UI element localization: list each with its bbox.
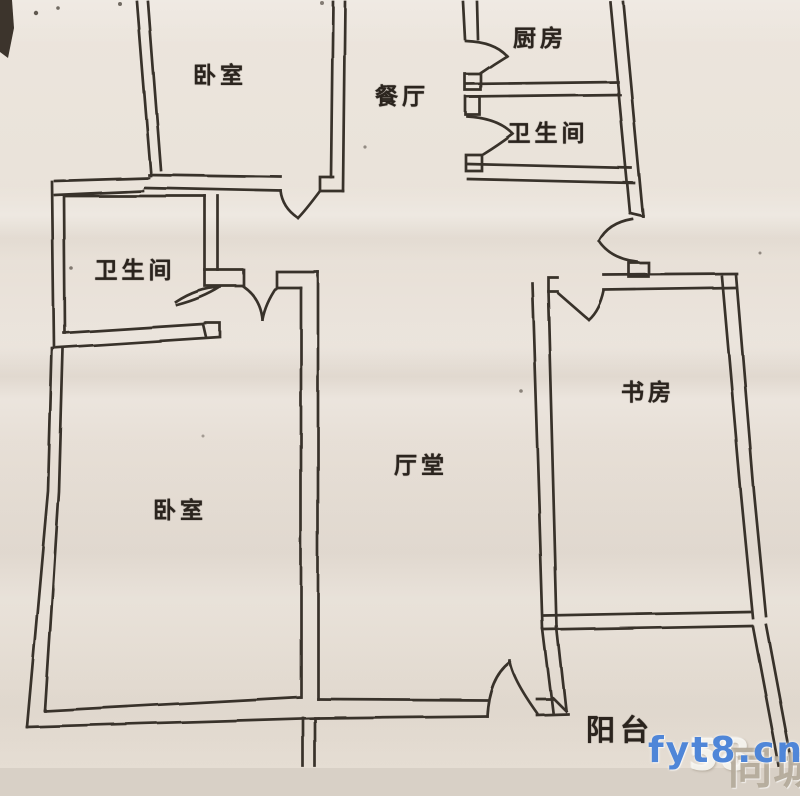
wall-hall-bottom — [318, 698, 568, 718]
room-label-bedroom-bottom: 卧室 — [153, 491, 207, 525]
wall-bedroom-top-left — [137, 2, 345, 191]
room-label-bathroom-left: 卫生间 — [95, 251, 176, 285]
wall-study — [532, 274, 766, 712]
room-label-bathroom-top: 卫生间 — [508, 114, 589, 148]
wall-hall-divider — [277, 272, 318, 699]
door-arc-study — [558, 291, 604, 320]
room-label-hall: 厅堂 — [394, 446, 448, 480]
room-label-dining: 餐厅 — [375, 77, 429, 111]
door-arc-bedroom-top — [281, 191, 320, 218]
wall-balcony-partition — [303, 718, 315, 766]
door-arc-balcony — [487, 661, 537, 716]
floor-plan-drawing — [0, 0, 800, 768]
door-arc-entry — [599, 219, 649, 277]
wall-outer-right-top — [610, 2, 643, 216]
watermark-site-text: fyt8.cn — [648, 730, 800, 771]
paper-specks — [0, 0, 762, 438]
door-arc-bathroom-top — [468, 117, 513, 154]
room-label-study: 书房 — [621, 373, 675, 407]
floor-plan-photo: 卧室 餐厅 厨房 卫生间 卫生间 书房 厅堂 卧室 阳台 58 同城 fyt8.… — [0, 0, 800, 768]
room-label-bedroom-top: 卧室 — [193, 56, 247, 90]
room-label-balcony: 阳台 — [586, 707, 654, 749]
door-arc-kitchen — [466, 41, 507, 73]
wall-bedroom-bottom — [27, 349, 318, 727]
door-arc-bathroom-left — [176, 287, 220, 305]
door-arc-bedroom-bottom — [244, 287, 277, 320]
room-label-kitchen: 厨房 — [513, 19, 567, 53]
